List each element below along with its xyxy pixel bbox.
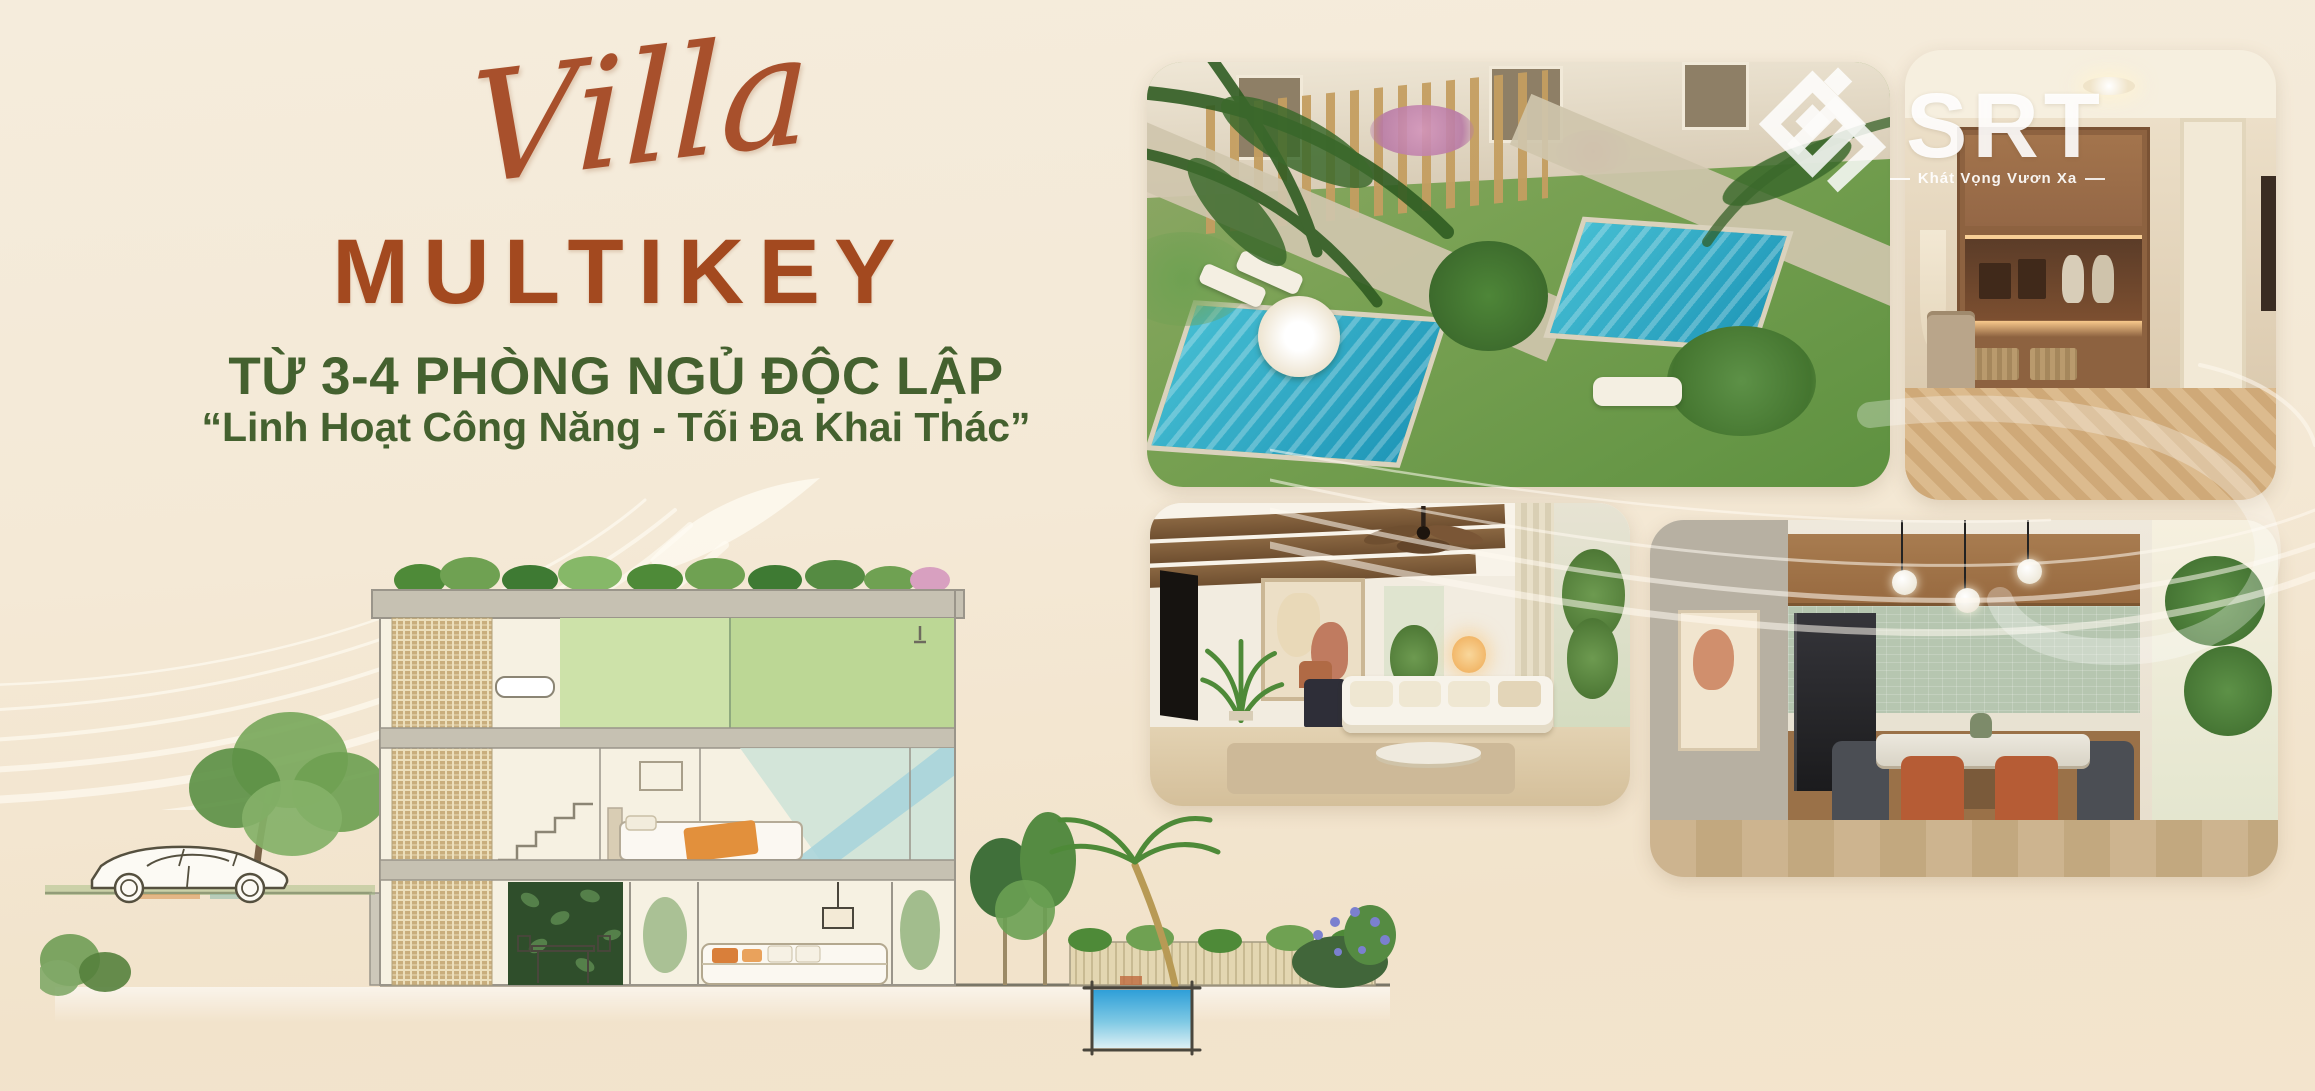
title-subtitle: TỪ 3-4 PHÒNG NGỦ ĐỘC LẬP: [116, 346, 1116, 407]
villa-cross-section-illustration: [40, 430, 1440, 1070]
srt-logo-mark-icon: [1750, 56, 1892, 198]
wall-panel: [2261, 176, 2276, 311]
srt-logo-text: SRT: [1906, 74, 2105, 179]
hanging-garment: [2062, 255, 2083, 304]
section-pool: [1084, 982, 1200, 1054]
srt-logo-tagline: Khát Vọng Vươn Xa: [1890, 170, 2105, 187]
title-main: MULTIKEY: [285, 220, 957, 325]
marketing-banner: Villa MULTIKEY TỪ 3-4 PHÒNG NGỦ ĐỘC LẬP …: [0, 0, 2315, 1091]
title-script: Villa: [440, 5, 840, 215]
building-section: [372, 556, 964, 985]
right-garden: [970, 812, 1396, 988]
bathroom-level: [496, 618, 955, 728]
